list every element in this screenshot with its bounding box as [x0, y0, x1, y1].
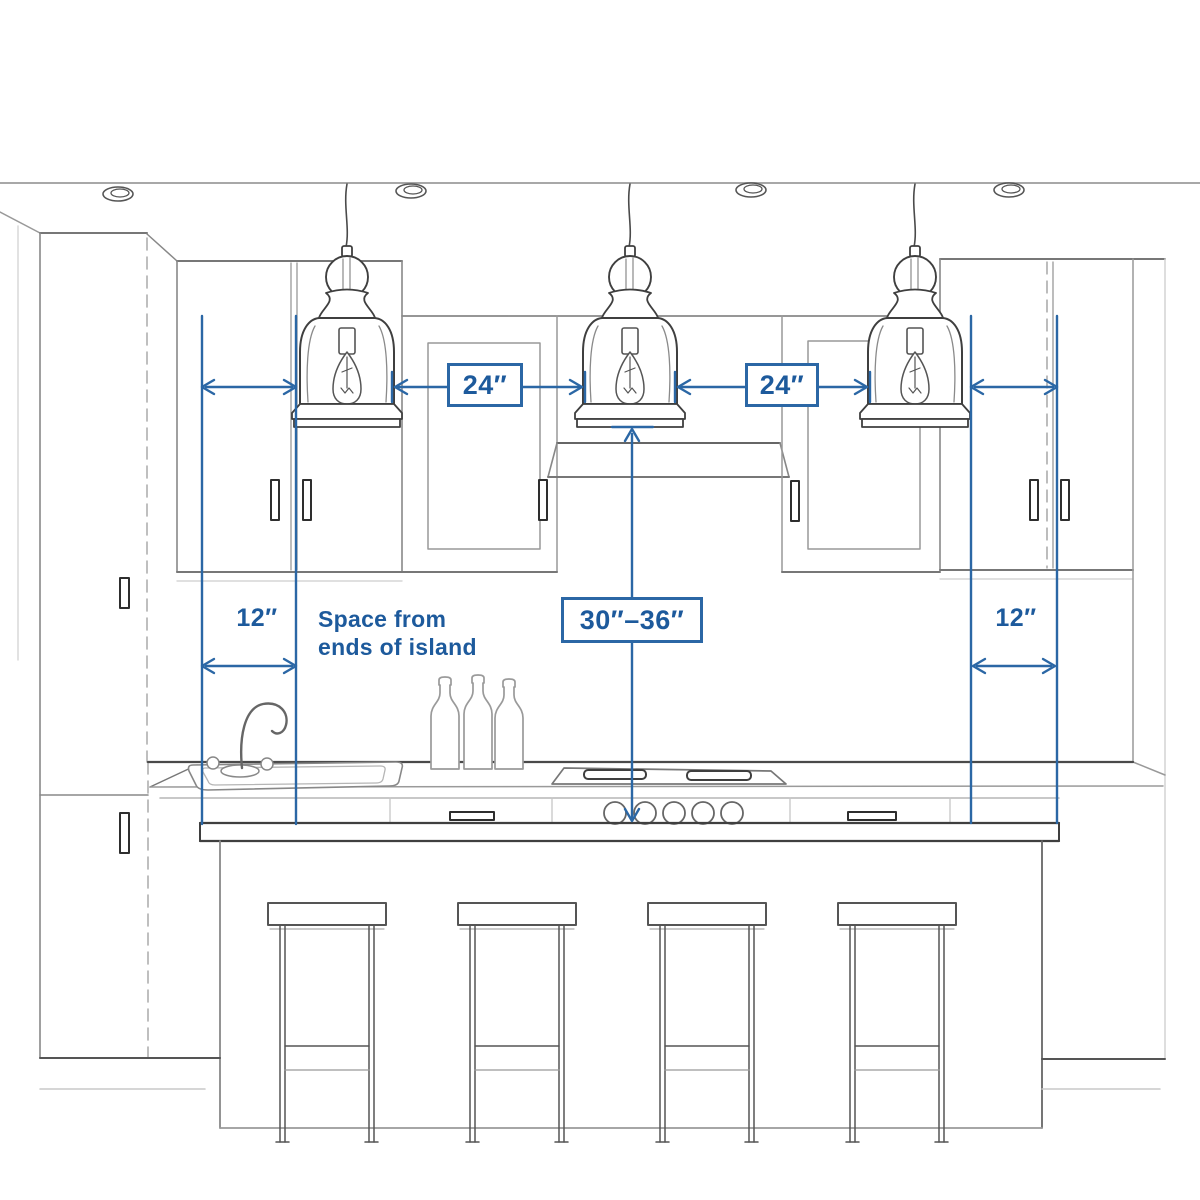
kitchen-island [200, 798, 1059, 1128]
dimension-label-island-end-right: 12″ [973, 604, 1059, 632]
dimension-label-island-end-left: 12″ [215, 604, 299, 632]
wine-bottles-icon [431, 675, 523, 769]
bar-stool-icon [268, 903, 956, 1142]
floor-lines [40, 1058, 1165, 1089]
kitchen-pendant-spacing-diagram: 24″ 24″ 30″–36″ 12″ 12″ Space from ends … [0, 0, 1200, 1200]
island-end-note-line1: Space from [318, 605, 538, 633]
range-hood [548, 443, 789, 477]
pendant-light-icon [292, 184, 970, 427]
recessed-light-icon [103, 183, 1024, 201]
left-tall-cabinet [0, 212, 177, 1058]
left-base-cabinet [40, 762, 148, 1058]
dimension-label-pendant-gap-left: 24″ [447, 363, 523, 407]
dimension-arrows-island-ends [202, 659, 1055, 673]
right-tall-cabinet [1133, 259, 1165, 1058]
right-upper-cabinet [940, 259, 1165, 579]
island-end-note: Space from ends of island [318, 605, 538, 661]
dimension-label-height-above-island: 30″–36″ [561, 597, 703, 643]
island-end-note-line2: ends of island [318, 633, 538, 661]
cooktop-icon [552, 768, 786, 784]
dimension-label-pendant-gap-right: 24″ [745, 363, 819, 407]
